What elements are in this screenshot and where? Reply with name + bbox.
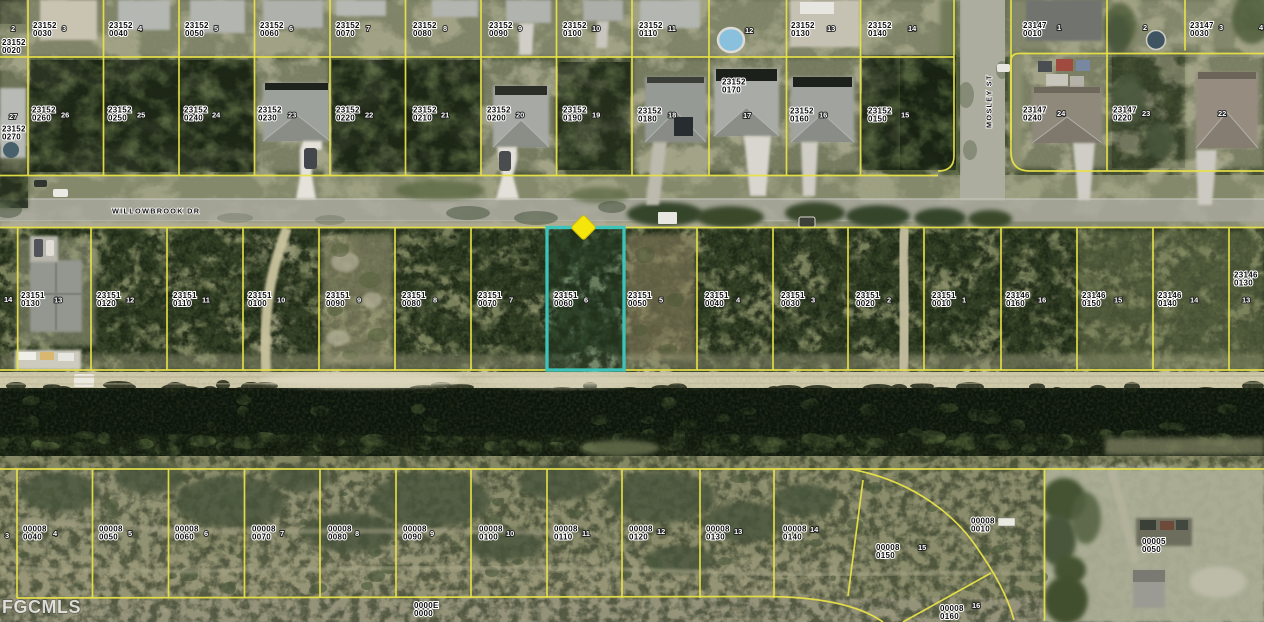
svg-text:11: 11 [668, 24, 676, 33]
svg-text:6: 6 [204, 529, 208, 538]
svg-text:0060: 0060 [260, 29, 279, 38]
svg-text:9: 9 [518, 24, 522, 33]
svg-text:15: 15 [901, 111, 909, 120]
svg-text:24: 24 [212, 111, 221, 120]
svg-text:0260: 0260 [32, 114, 51, 123]
svg-text:0030: 0030 [1190, 29, 1209, 38]
svg-text:0070: 0070 [336, 29, 355, 38]
svg-text:0140: 0140 [868, 29, 887, 38]
svg-text:0040: 0040 [23, 533, 42, 542]
svg-text:0090: 0090 [403, 533, 422, 542]
svg-text:16: 16 [819, 111, 827, 120]
svg-text:15: 15 [1114, 296, 1122, 305]
svg-text:8: 8 [433, 296, 437, 305]
svg-text:0220: 0220 [336, 114, 355, 123]
svg-text:0110: 0110 [173, 299, 192, 308]
svg-text:0130: 0130 [1234, 279, 1253, 288]
svg-text:0090: 0090 [489, 29, 508, 38]
svg-text:0270: 0270 [2, 133, 21, 142]
svg-text:3: 3 [1219, 23, 1223, 32]
svg-text:0080: 0080 [413, 29, 432, 38]
svg-text:0120: 0120 [97, 299, 116, 308]
svg-text:0160: 0160 [940, 612, 959, 621]
svg-text:18: 18 [668, 111, 676, 120]
svg-text:17: 17 [743, 111, 751, 120]
svg-text:0040: 0040 [109, 29, 128, 38]
svg-text:0070: 0070 [478, 299, 497, 308]
svg-text:0080: 0080 [402, 299, 421, 308]
svg-text:7: 7 [366, 24, 370, 33]
svg-text:0050: 0050 [99, 533, 118, 542]
svg-text:5: 5 [214, 24, 218, 33]
svg-text:0130: 0130 [21, 299, 40, 308]
svg-text:0100: 0100 [248, 299, 267, 308]
svg-text:0250: 0250 [108, 114, 127, 123]
svg-text:0000: 0000 [414, 609, 433, 618]
svg-text:20: 20 [516, 111, 524, 120]
svg-text:3: 3 [5, 531, 9, 540]
svg-text:5: 5 [128, 529, 132, 538]
svg-text:16: 16 [1038, 296, 1046, 305]
svg-text:0030: 0030 [33, 29, 52, 38]
svg-text:0090: 0090 [326, 299, 345, 308]
svg-text:13: 13 [1242, 296, 1250, 305]
svg-text:0190: 0190 [563, 114, 582, 123]
svg-text:12: 12 [126, 296, 134, 305]
svg-text:0140: 0140 [1158, 299, 1177, 308]
svg-text:25: 25 [137, 111, 145, 120]
svg-text:0060: 0060 [175, 533, 194, 542]
svg-text:13: 13 [827, 24, 835, 33]
svg-text:14: 14 [908, 24, 917, 33]
svg-text:0210: 0210 [413, 114, 432, 123]
svg-text:0030: 0030 [781, 299, 800, 308]
svg-text:0200: 0200 [487, 114, 506, 123]
svg-text:FGCMLS: FGCMLS [2, 597, 81, 617]
svg-text:0160: 0160 [1006, 299, 1025, 308]
svg-text:23: 23 [1142, 109, 1150, 118]
svg-text:12: 12 [657, 527, 665, 536]
svg-text:27: 27 [9, 112, 17, 121]
svg-text:13: 13 [54, 296, 62, 305]
svg-text:3: 3 [811, 296, 815, 305]
svg-text:11: 11 [202, 296, 210, 305]
svg-text:24: 24 [1057, 109, 1066, 118]
svg-text:0150: 0150 [1082, 299, 1101, 308]
svg-text:21: 21 [441, 111, 449, 120]
svg-text:11: 11 [582, 529, 590, 538]
svg-text:1: 1 [1057, 23, 1061, 32]
svg-text:0110: 0110 [554, 533, 573, 542]
svg-text:22: 22 [365, 111, 373, 120]
svg-text:15: 15 [918, 543, 926, 552]
svg-text:0240: 0240 [184, 114, 203, 123]
svg-text:0100: 0100 [479, 533, 498, 542]
svg-text:8: 8 [443, 24, 447, 33]
svg-text:0010: 0010 [932, 299, 951, 308]
svg-text:6: 6 [584, 296, 588, 305]
svg-text:2: 2 [1143, 23, 1147, 32]
svg-text:0150: 0150 [876, 551, 895, 560]
svg-text:0230: 0230 [258, 114, 277, 123]
svg-text:14: 14 [1190, 296, 1199, 305]
svg-text:0080: 0080 [328, 533, 347, 542]
svg-text:26: 26 [61, 111, 69, 120]
svg-text:10: 10 [277, 296, 285, 305]
svg-text:0150: 0150 [868, 115, 887, 124]
svg-text:0050: 0050 [1142, 545, 1161, 554]
svg-text:23: 23 [288, 111, 296, 120]
svg-text:2: 2 [11, 24, 15, 33]
svg-text:0110: 0110 [639, 29, 658, 38]
svg-text:0050: 0050 [185, 29, 204, 38]
svg-text:0130: 0130 [706, 533, 725, 542]
svg-text:0060: 0060 [554, 299, 573, 308]
svg-text:7: 7 [509, 296, 513, 305]
svg-text:10: 10 [506, 529, 514, 538]
svg-text:13: 13 [734, 527, 742, 536]
svg-text:MOSLEY ST: MOSLEY ST [985, 74, 994, 128]
svg-text:14: 14 [810, 525, 819, 534]
svg-text:7: 7 [280, 529, 284, 538]
svg-text:0010: 0010 [1023, 29, 1042, 38]
svg-text:6: 6 [289, 24, 293, 33]
svg-text:0020: 0020 [2, 46, 21, 55]
svg-text:0010: 0010 [971, 525, 990, 534]
svg-text:19: 19 [592, 111, 600, 120]
svg-text:0020: 0020 [856, 299, 875, 308]
svg-text:22: 22 [1218, 109, 1226, 118]
svg-text:0140: 0140 [783, 533, 802, 542]
svg-text:5: 5 [659, 296, 663, 305]
svg-text:14: 14 [4, 295, 13, 304]
svg-text:0160: 0160 [790, 115, 809, 124]
svg-text:WILLOWBROOK DR: WILLOWBROOK DR [112, 207, 200, 216]
svg-text:0180: 0180 [638, 115, 657, 124]
svg-text:0120: 0120 [629, 533, 648, 542]
svg-text:0040: 0040 [705, 299, 724, 308]
svg-text:0100: 0100 [563, 29, 582, 38]
svg-text:12: 12 [745, 26, 753, 35]
svg-text:8: 8 [355, 529, 359, 538]
svg-text:0050: 0050 [628, 299, 647, 308]
svg-text:0070: 0070 [252, 533, 271, 542]
svg-text:3: 3 [62, 24, 66, 33]
svg-text:9: 9 [357, 296, 361, 305]
svg-text:10: 10 [592, 24, 600, 33]
svg-text:0130: 0130 [791, 29, 810, 38]
svg-text:0240: 0240 [1023, 114, 1042, 123]
svg-text:2: 2 [887, 296, 891, 305]
svg-text:1: 1 [962, 296, 966, 305]
svg-text:9: 9 [430, 529, 434, 538]
svg-text:0170: 0170 [722, 86, 741, 95]
svg-text:16: 16 [972, 601, 980, 610]
svg-text:0220: 0220 [1113, 114, 1132, 123]
